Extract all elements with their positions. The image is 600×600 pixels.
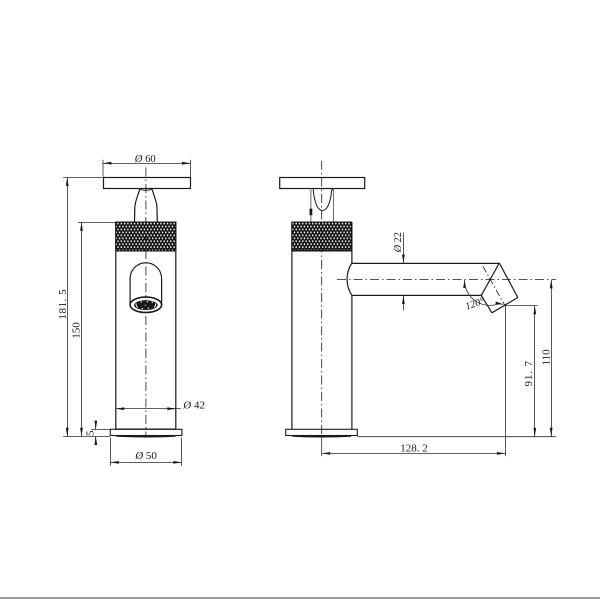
svg-text:91. 7: 91. 7 [523, 360, 535, 387]
svg-text:Ø 60: Ø 60 [134, 154, 156, 165]
svg-text:120°: 120° [464, 296, 486, 313]
svg-text:Ø 42: Ø 42 [182, 399, 205, 411]
svg-text:Ø 50: Ø 50 [134, 450, 157, 462]
svg-text:181. 5: 181. 5 [57, 289, 69, 320]
svg-text:110: 110 [540, 349, 552, 366]
svg-text:128. 2: 128. 2 [400, 443, 428, 455]
svg-text:Ø 22: Ø 22 [393, 232, 404, 253]
svg-text:150: 150 [70, 322, 82, 339]
svg-text:5: 5 [85, 430, 97, 436]
